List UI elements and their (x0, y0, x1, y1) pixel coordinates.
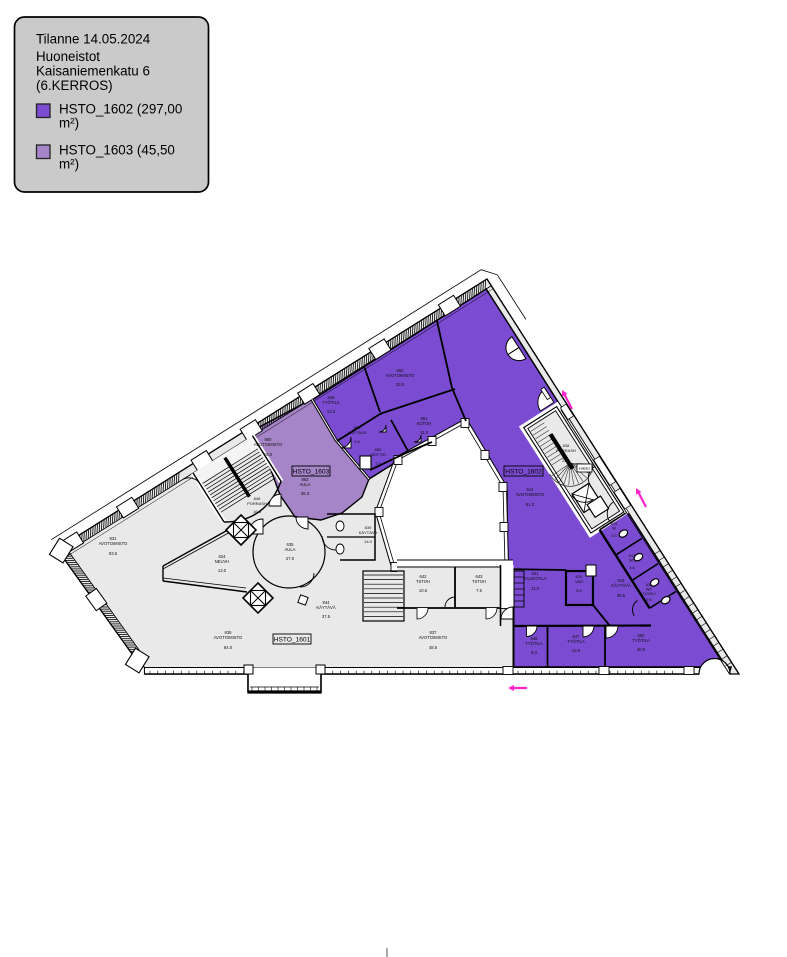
svg-text:HSTO_1603: HSTO_1603 (293, 469, 330, 476)
svg-text:22.0: 22.0 (562, 458, 571, 463)
svg-text:27.0: 27.0 (286, 556, 295, 561)
svg-text:7.5: 7.5 (476, 588, 482, 593)
svg-text:84.0: 84.0 (224, 645, 233, 650)
svg-text:16.5: 16.5 (253, 509, 262, 514)
svg-text:HSTO_1602 (297,00: HSTO_1602 (297,00 (59, 102, 182, 117)
svg-text:13.0: 13.0 (572, 648, 581, 653)
svg-text:HSTO_1601: HSTO_1601 (274, 637, 311, 644)
svg-text:Tilanne 14.05.2024: Tilanne 14.05.2024 (36, 32, 151, 47)
svg-text:14.0: 14.0 (364, 539, 373, 544)
svg-text:HKKI: HKKI (579, 466, 590, 471)
svg-text:11.0: 11.0 (531, 586, 540, 591)
svg-text:4.6: 4.6 (629, 566, 634, 570)
svg-text:10.5: 10.5 (419, 588, 428, 593)
svg-text:HSTO_1603 (45,50: HSTO_1603 (45,50 (59, 143, 175, 158)
svg-text:5.9: 5.9 (354, 439, 360, 444)
svg-text:38.5: 38.5 (617, 593, 626, 598)
svg-text:3.3: 3.3 (611, 534, 616, 538)
svg-text:HSTO_1602: HSTO_1602 (505, 469, 542, 476)
svg-text:38.3: 38.3 (301, 491, 310, 496)
svg-text:18.0: 18.0 (264, 452, 273, 457)
svg-text:13.3: 13.3 (327, 409, 336, 414)
svg-text:617WC: 617WC (629, 554, 636, 563)
svg-text:8.3: 8.3 (531, 650, 537, 655)
svg-text:11.0: 11.0 (420, 430, 429, 435)
svg-text:Huoneistot: Huoneistot (36, 49, 100, 64)
svg-text:m²): m²) (59, 157, 79, 172)
svg-text:5.5: 5.5 (576, 588, 582, 593)
svg-text:48.5: 48.5 (429, 645, 438, 650)
svg-text:5.5: 5.5 (646, 598, 651, 602)
svg-text:13.0: 13.0 (218, 568, 227, 573)
svg-text:Kaisaniemenkatu 6: Kaisaniemenkatu 6 (36, 64, 150, 79)
svg-text:93.5: 93.5 (109, 551, 118, 556)
svg-text:33.5: 33.5 (396, 382, 405, 387)
svg-text:37.5: 37.5 (322, 614, 331, 619)
svg-text:(6.KERROS): (6.KERROS) (36, 78, 113, 93)
svg-text:81.0: 81.0 (526, 502, 535, 507)
svg-text:30.5: 30.5 (637, 647, 646, 652)
svg-text:m²): m²) (59, 116, 79, 131)
svg-text:7.5: 7.5 (375, 461, 381, 466)
svg-text:620VAR: 620VAR (575, 574, 583, 584)
